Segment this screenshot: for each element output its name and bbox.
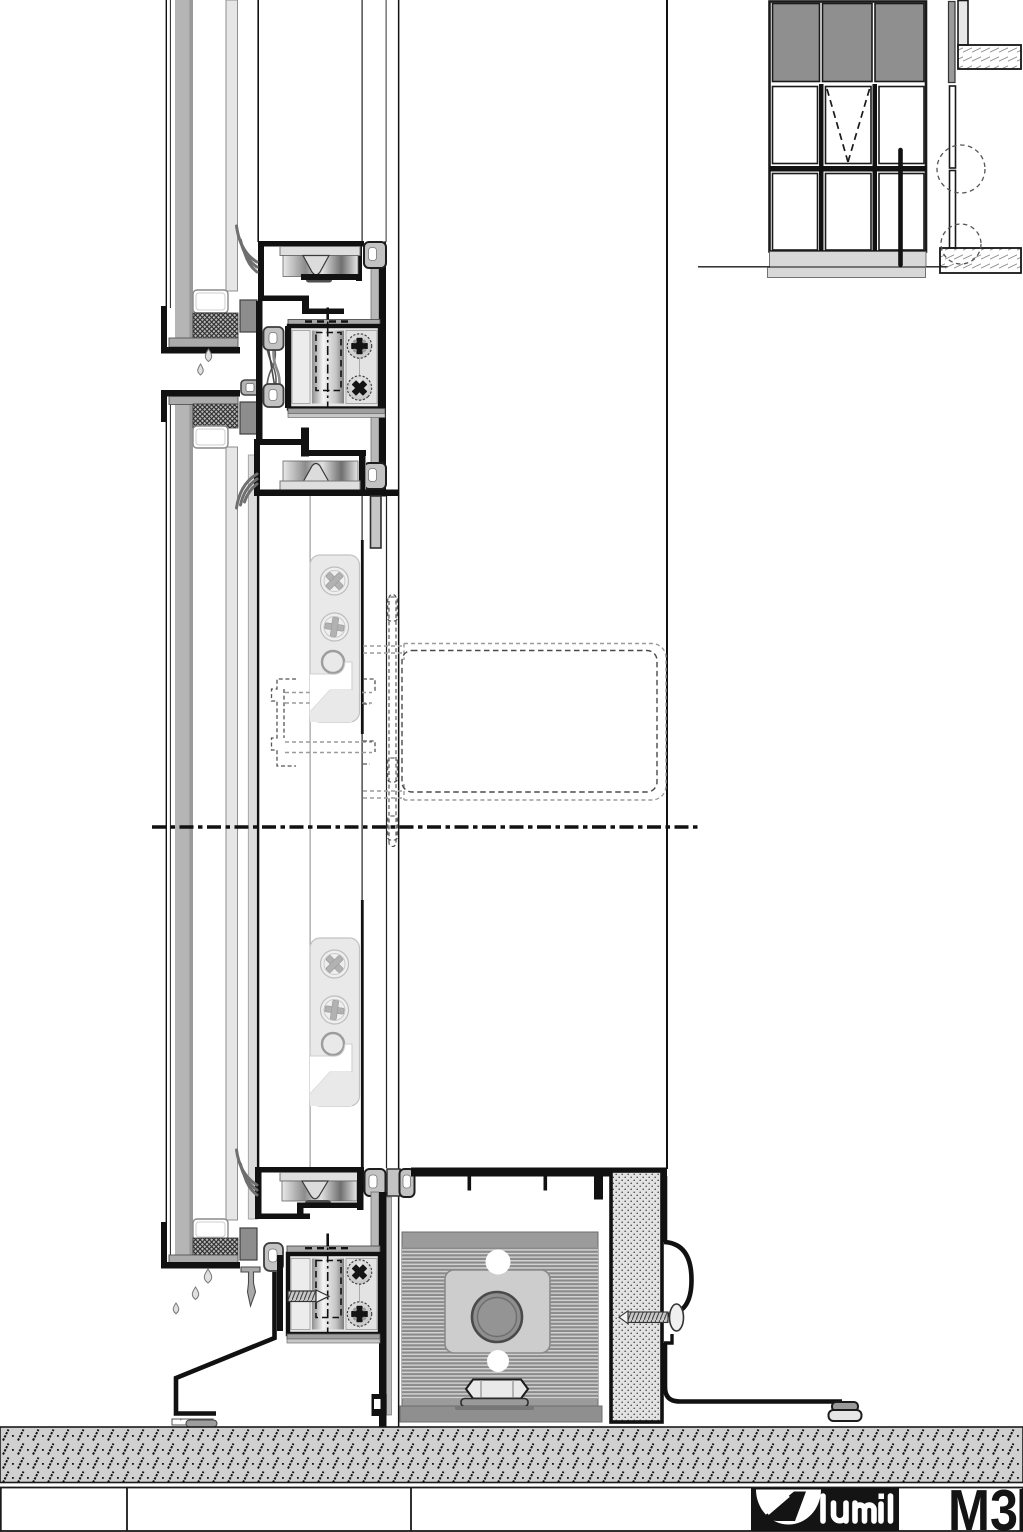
svg-text:M3: M3 <box>948 1478 1018 1532</box>
